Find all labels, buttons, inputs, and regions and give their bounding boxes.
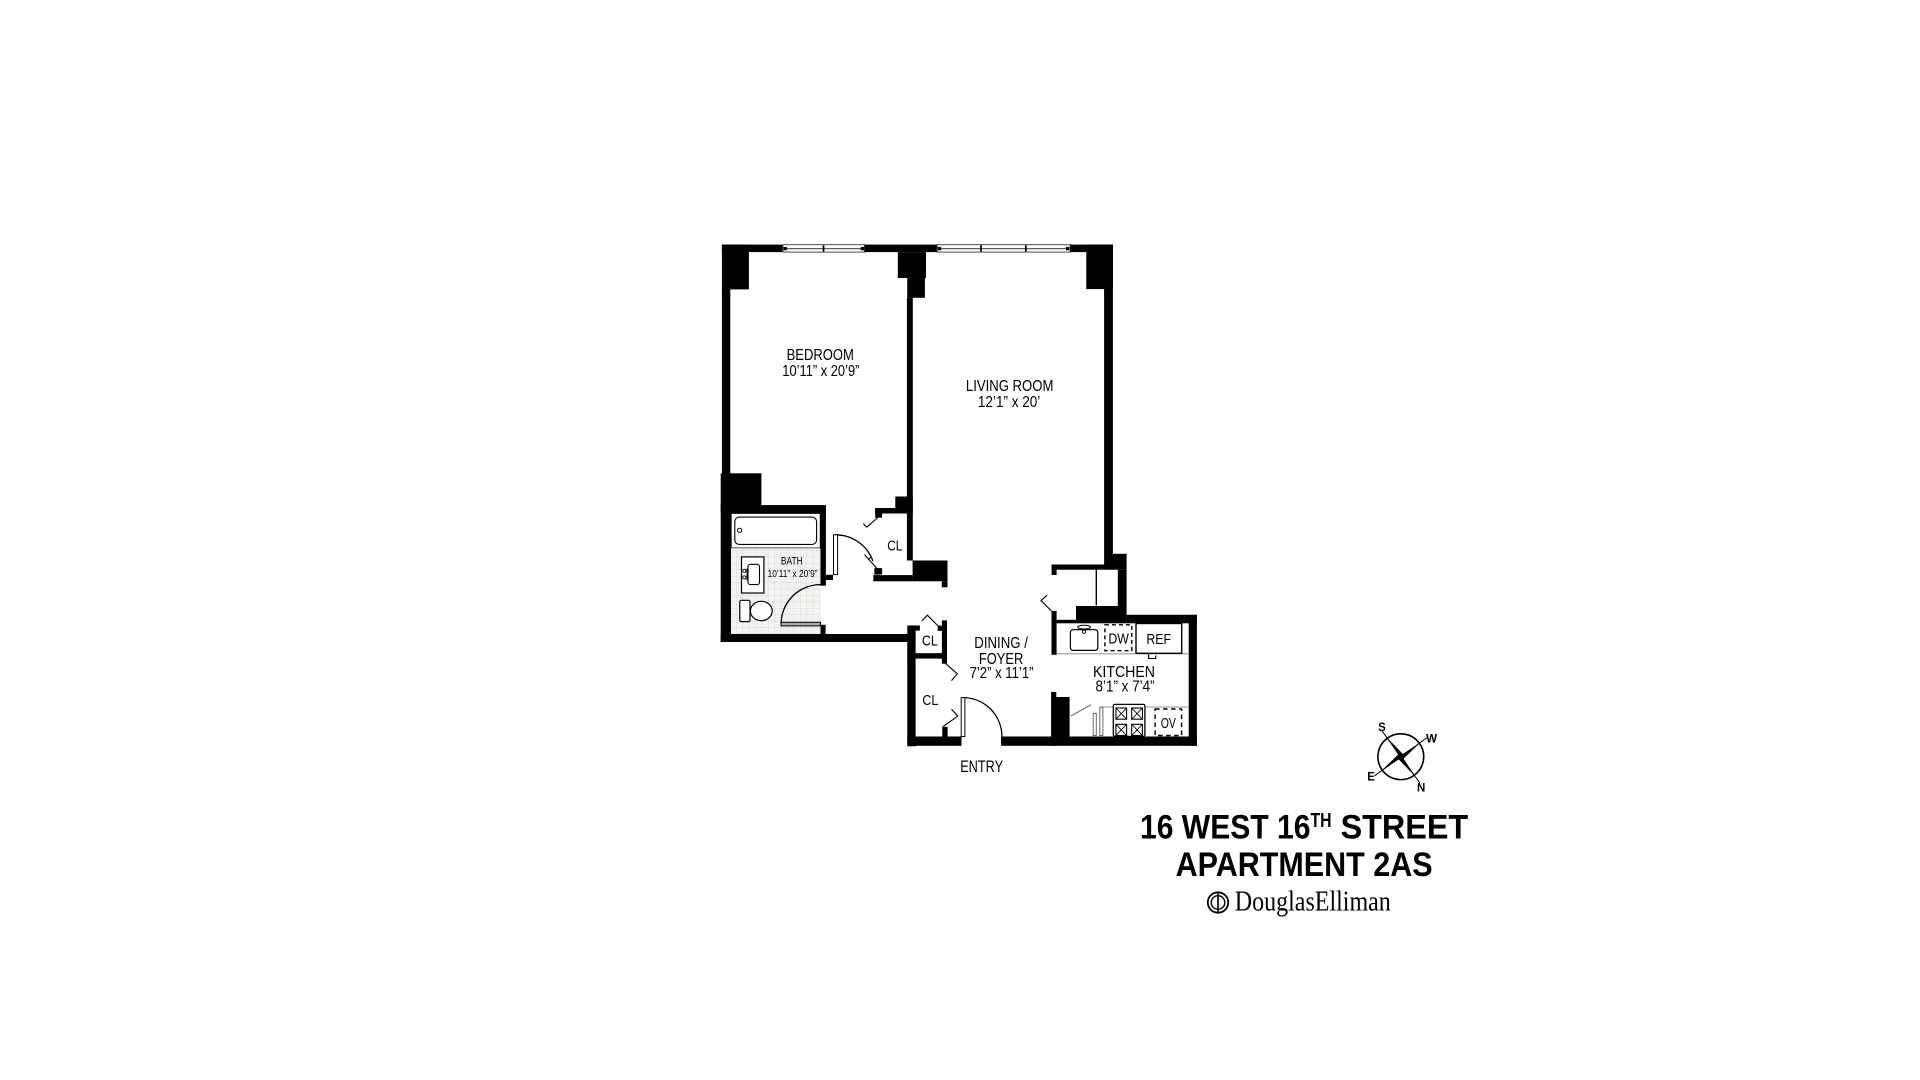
svg-text:OV: OV [1161,715,1176,732]
svg-text:12’1” x 20’: 12’1” x 20’ [978,394,1040,411]
svg-text:TH: TH [1311,809,1332,832]
svg-text:BEDROOM: BEDROOM [787,347,854,364]
svg-text:BATH: BATH [781,556,803,568]
svg-text:STREET: STREET [1341,809,1469,847]
svg-text:DW: DW [1108,632,1129,648]
svg-text:ENTRY: ENTRY [960,758,1003,776]
svg-text:16 WEST 16: 16 WEST 16 [1140,809,1311,847]
svg-text:7’2” x 11’1”: 7’2” x 11’1” [970,665,1034,682]
svg-text:LIVING ROOM: LIVING ROOM [966,378,1054,395]
svg-text:8’1” x 7’4”: 8’1” x 7’4” [1096,679,1155,696]
svg-text:10’11” x 20’9”: 10’11” x 20’9” [782,363,859,380]
svg-text:CL: CL [887,538,902,555]
svg-text:REF: REF [1146,632,1171,648]
svg-text:CL: CL [922,633,938,650]
svg-text:E: E [1367,771,1375,783]
svg-text:DouglasElliman: DouglasElliman [1235,887,1391,918]
svg-text:APARTMENT 2AS: APARTMENT 2AS [1176,846,1433,884]
svg-text:DINING /: DINING / [974,635,1028,652]
svg-text:10’11” x 20’9”: 10’11” x 20’9” [768,569,818,580]
svg-text:S: S [1378,722,1386,734]
svg-text:N: N [1417,782,1425,794]
svg-text:W: W [1426,734,1437,746]
svg-text:CL: CL [922,692,938,709]
